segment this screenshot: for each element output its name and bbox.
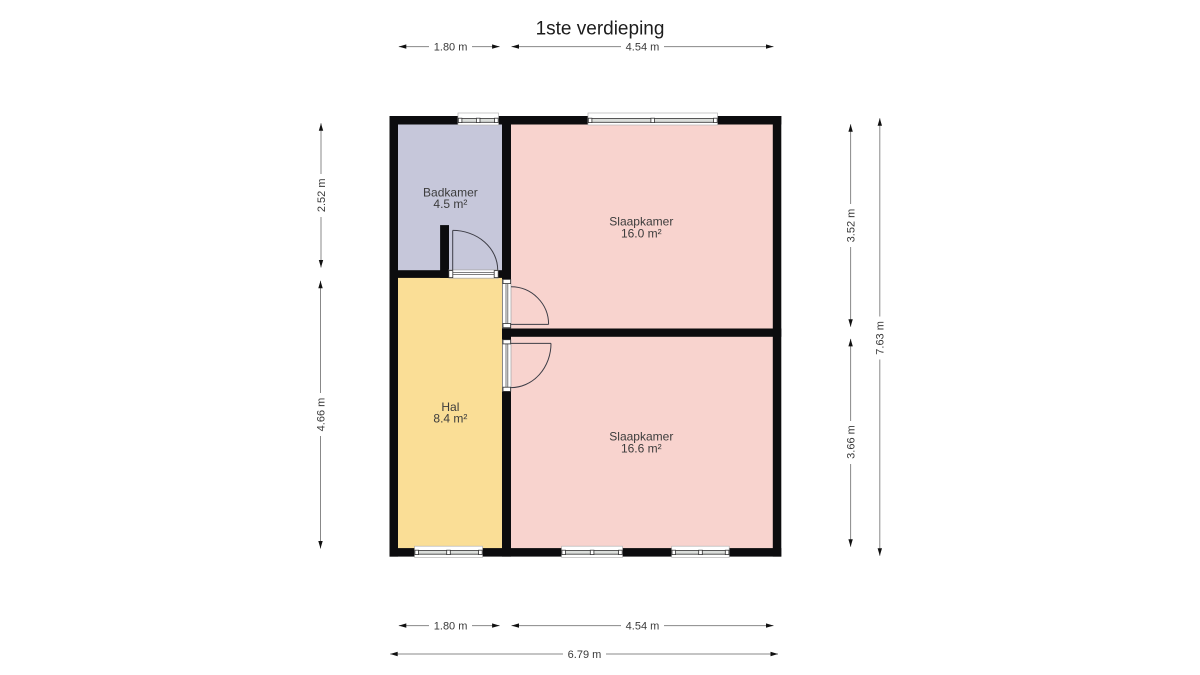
svg-text:4.54 m: 4.54 m <box>626 42 660 54</box>
svg-text:3.66 m: 3.66 m <box>845 425 857 459</box>
svg-text:1.80 m: 1.80 m <box>434 621 468 633</box>
svg-text:4.54 m: 4.54 m <box>626 621 660 633</box>
svg-text:8.4 m²: 8.4 m² <box>433 411 467 425</box>
svg-text:16.6 m²: 16.6 m² <box>621 442 662 456</box>
svg-text:2.52 m: 2.52 m <box>316 178 328 212</box>
svg-text:4.66 m: 4.66 m <box>315 398 327 432</box>
svg-text:1ste verdieping: 1ste verdieping <box>536 19 665 40</box>
svg-text:1.80 m: 1.80 m <box>434 42 468 54</box>
svg-text:6.79 m: 6.79 m <box>568 649 602 661</box>
svg-text:16.0 m²: 16.0 m² <box>621 227 662 241</box>
svg-text:4.5 m²: 4.5 m² <box>433 197 467 211</box>
svg-text:7.63 m: 7.63 m <box>875 321 887 355</box>
svg-text:3.52 m: 3.52 m <box>845 209 857 243</box>
